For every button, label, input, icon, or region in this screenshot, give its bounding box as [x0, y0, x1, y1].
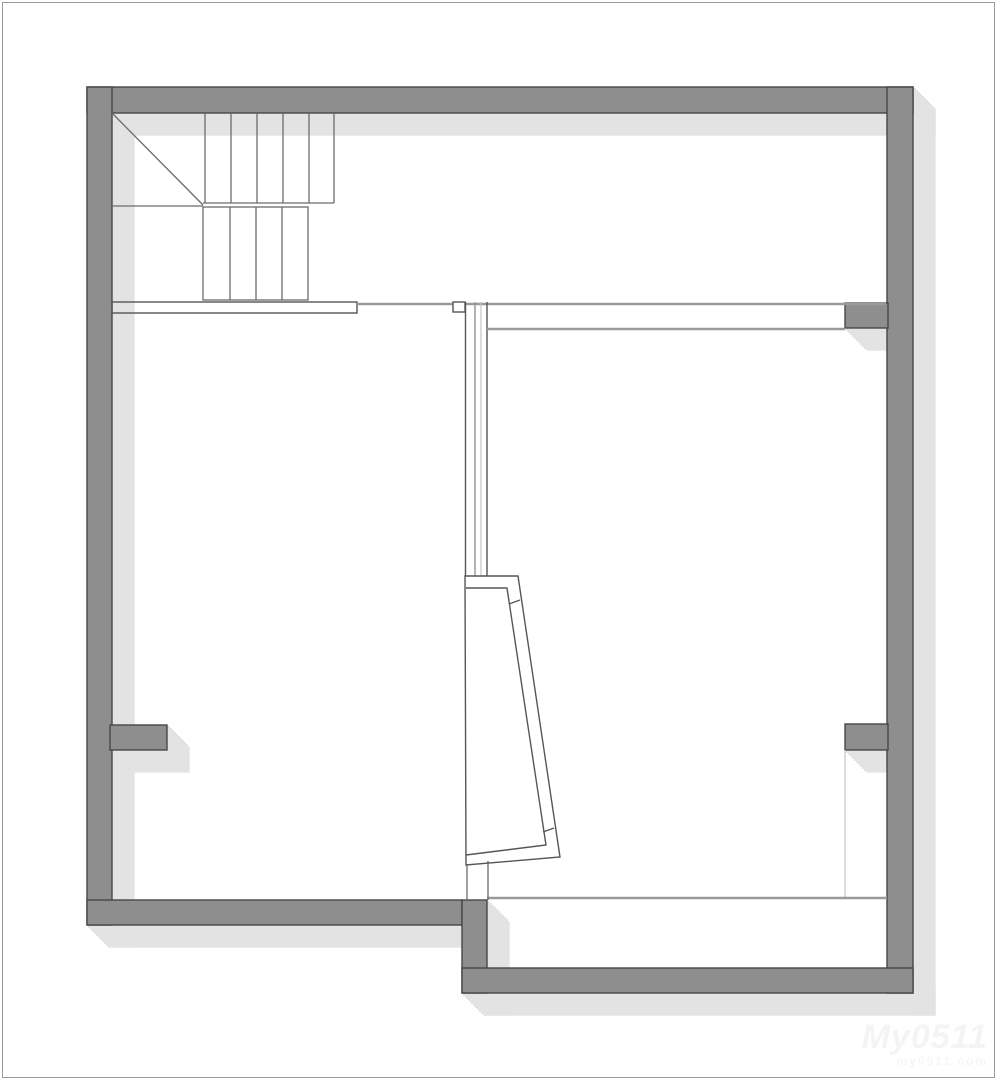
stair-break-diagonal-line: [112, 113, 203, 205]
staircase: [112, 113, 334, 300]
watermark-sub-text: my0511.com: [862, 1055, 988, 1068]
angled-door-outer-outline: [465, 576, 560, 865]
floor-plan-canvas: My0511 my0511.com: [0, 0, 1000, 1082]
right-wall: [887, 87, 913, 993]
right-upper-wall-stub: [845, 303, 888, 328]
floor-plan-drawing: [0, 0, 1000, 1082]
top-wall: [87, 87, 913, 113]
angled-door-divider-tick: [509, 600, 520, 604]
partition-end-cap: [453, 302, 465, 312]
left-wall: [87, 87, 112, 925]
left-wall-stub: [110, 725, 167, 750]
angled-door-divider-tick: [543, 828, 554, 832]
hallway-partition-wall: [112, 302, 357, 313]
angled-door-screen: [465, 576, 560, 865]
interior-partitions: [112, 302, 887, 900]
watermark-logo-text: My0511: [862, 1020, 988, 1056]
bottom-left-wall: [87, 900, 462, 925]
exterior-walls: [87, 87, 913, 993]
watermark: My0511 my0511.com: [862, 1020, 988, 1068]
angled-door-inner-outline: [466, 588, 546, 855]
bottom-right-wall: [462, 968, 913, 993]
right-mid-wall-stub: [845, 724, 888, 750]
